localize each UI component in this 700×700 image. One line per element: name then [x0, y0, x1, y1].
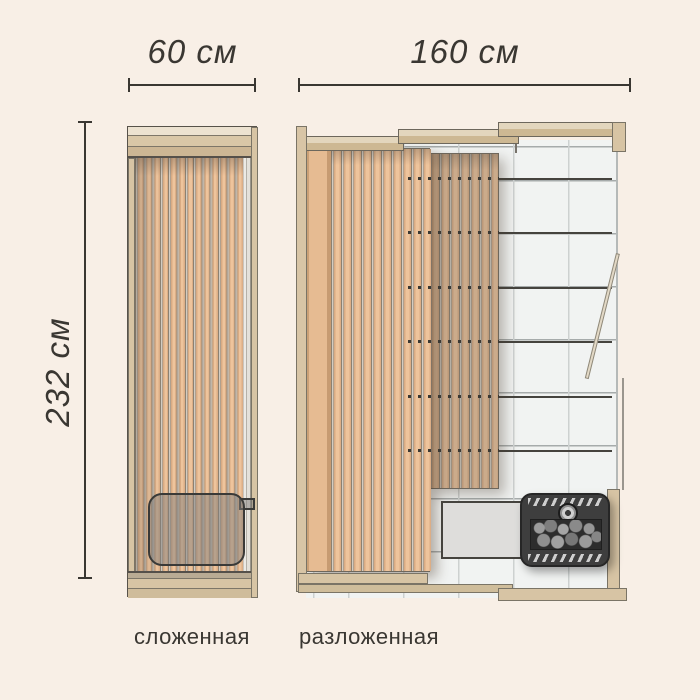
wall-edge-line	[622, 378, 624, 490]
dotted-line-3	[408, 286, 499, 289]
top-rail-left	[303, 136, 404, 151]
top-rail-right	[498, 122, 622, 137]
dotted-line-1	[408, 177, 499, 180]
heater-hatch-bottom	[528, 554, 604, 562]
folded-cabin	[127, 126, 257, 597]
dim-folded-width-tick-right	[254, 78, 256, 92]
dotted-line-2	[408, 231, 499, 234]
dim-height-tick-top	[78, 121, 92, 123]
folded-base-plinth	[128, 571, 251, 598]
panel-front-stile	[307, 149, 331, 571]
dotted-line-5	[408, 395, 499, 398]
heater-icon	[520, 493, 610, 567]
base-strip-right	[498, 588, 627, 601]
dim-folded-width-label: 60 см	[129, 33, 256, 71]
dim-unfolded-width-line	[299, 84, 631, 86]
caption-unfolded: разложенная	[299, 624, 439, 650]
dotted-line-6	[408, 449, 499, 452]
base-strip-left-upper	[298, 573, 428, 584]
top-right-post	[612, 122, 626, 152]
base-strip-left-lower	[298, 584, 513, 593]
rail-connector	[515, 144, 517, 153]
dim-unfolded-width-tick-right	[629, 78, 631, 92]
bench	[441, 501, 527, 559]
slat-panel-front	[306, 148, 430, 572]
crossbar-line-3	[497, 287, 612, 289]
crossbar-line-5	[497, 396, 612, 398]
dim-unfolded-width-label: 160 см	[299, 33, 631, 71]
dim-height-line	[84, 122, 86, 578]
left-corner-post	[296, 126, 307, 592]
dim-height-tick-bottom	[78, 577, 92, 579]
slat-panel-back	[428, 153, 499, 489]
dim-unfolded-width-tick-left	[298, 78, 300, 92]
folded-heater-silhouette	[148, 493, 245, 566]
crossbar-line-6	[497, 450, 612, 452]
caption-folded: сложенная	[127, 624, 257, 650]
dim-height-label: 232 см	[38, 317, 78, 427]
dim-folded-width-line	[129, 84, 256, 86]
folded-top-header	[128, 127, 256, 158]
folded-left-stile	[128, 158, 135, 598]
heater-stones-icon	[530, 519, 602, 550]
panel-front-slats	[331, 149, 431, 571]
dotted-line-4	[408, 340, 499, 343]
dim-folded-width-tick-left	[128, 78, 130, 92]
folded-right-stile	[251, 127, 258, 598]
unfolded-cabin	[296, 122, 631, 601]
crossbar-line-2	[497, 232, 612, 234]
diagram-canvas: 60 см 160 см 232 см	[0, 0, 700, 700]
crossbar-line-1	[497, 178, 612, 180]
